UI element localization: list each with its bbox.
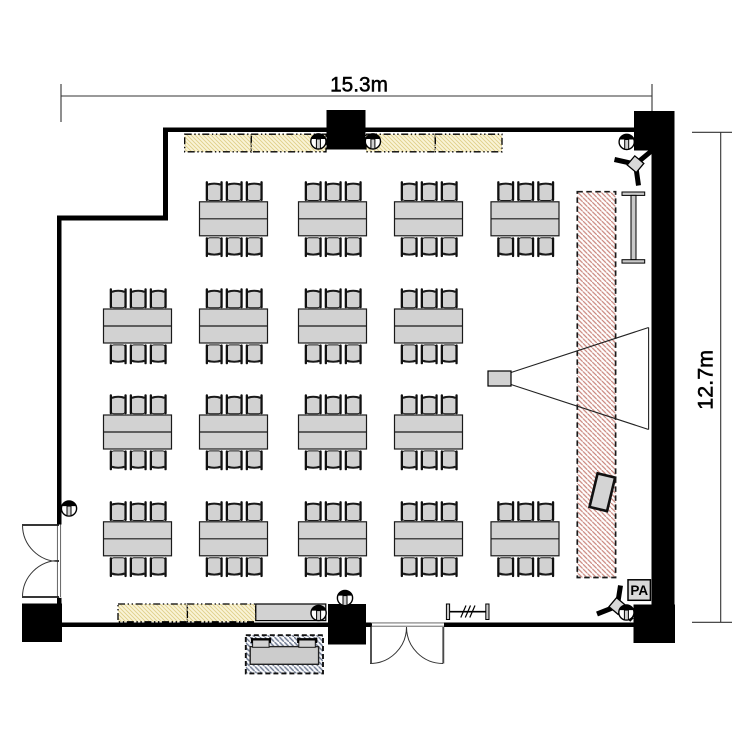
svg-text:12.7m: 12.7m — [694, 350, 718, 410]
svg-text:PA: PA — [630, 583, 648, 598]
svg-text:15.3m: 15.3m — [330, 74, 388, 97]
